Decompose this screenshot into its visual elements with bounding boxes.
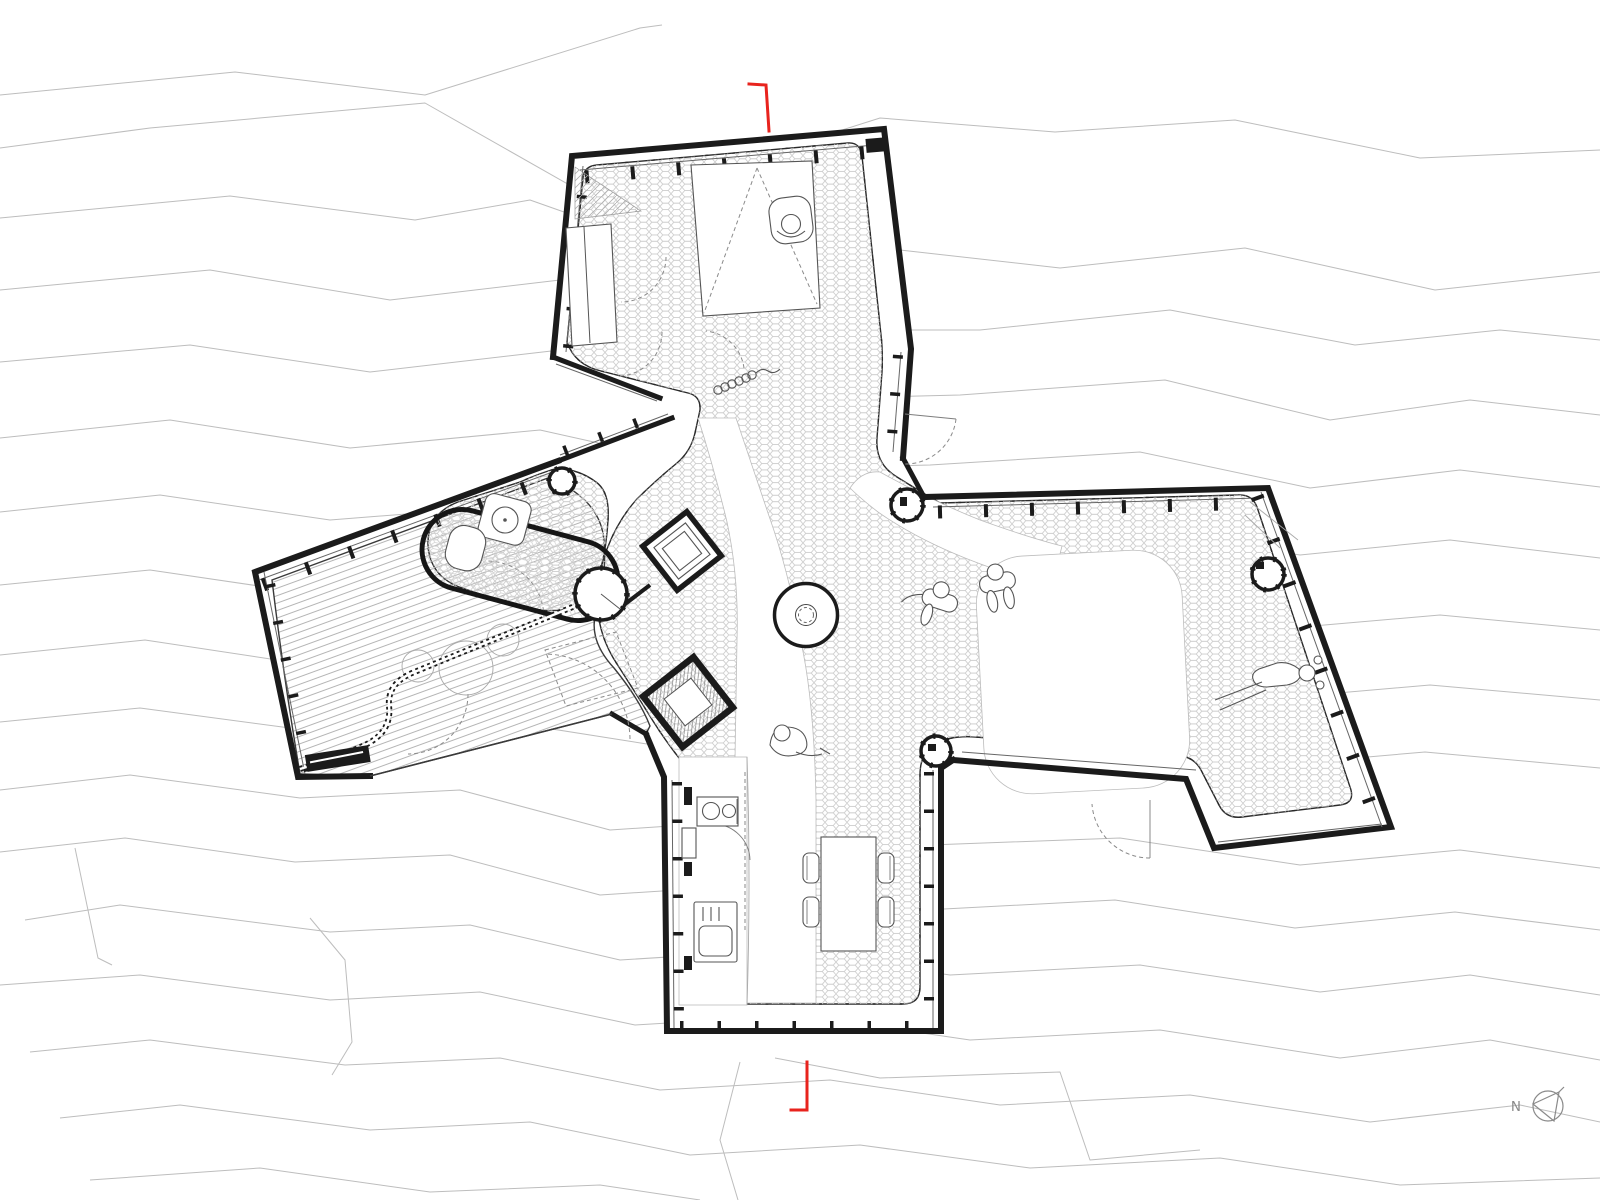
round-fire-table (775, 584, 838, 647)
section-marker-top (749, 84, 769, 131)
building (255, 129, 1391, 1031)
lounge-chair-figure (767, 195, 814, 246)
cooktop (697, 797, 738, 826)
person-head (782, 215, 801, 234)
kitchen-sink-unit (694, 902, 737, 962)
wardrobe (566, 224, 617, 346)
dining-table (821, 837, 876, 951)
north-arrow: N (1511, 1087, 1564, 1121)
floor-plan-drawing: N (0, 0, 1600, 1200)
floor-plan-sheet: N (0, 0, 1600, 1200)
cabinet-block (865, 137, 888, 153)
section-marker-bottom (791, 1062, 807, 1110)
north-label: N (1511, 1099, 1521, 1115)
